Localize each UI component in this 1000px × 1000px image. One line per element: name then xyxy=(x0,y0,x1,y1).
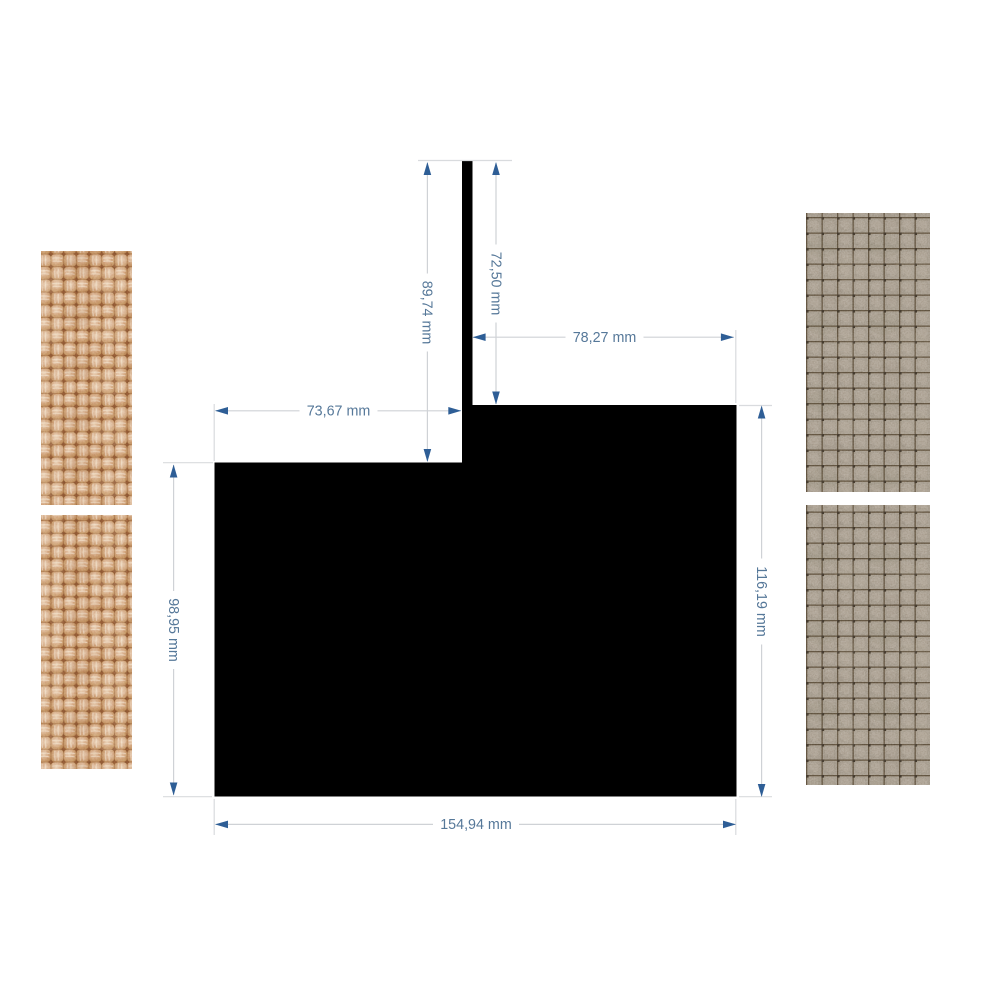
svg-text:73,67 mm: 73,67 mm xyxy=(307,404,371,420)
svg-text:89,74 mm: 89,74 mm xyxy=(419,281,435,345)
svg-text:98,95 mm: 98,95 mm xyxy=(165,598,181,662)
svg-text:72,50 mm: 72,50 mm xyxy=(487,252,503,316)
svg-text:154,94 mm: 154,94 mm xyxy=(440,817,512,833)
svg-text:78,27 mm: 78,27 mm xyxy=(573,330,637,346)
svg-text:116,19 mm: 116,19 mm xyxy=(753,566,769,636)
